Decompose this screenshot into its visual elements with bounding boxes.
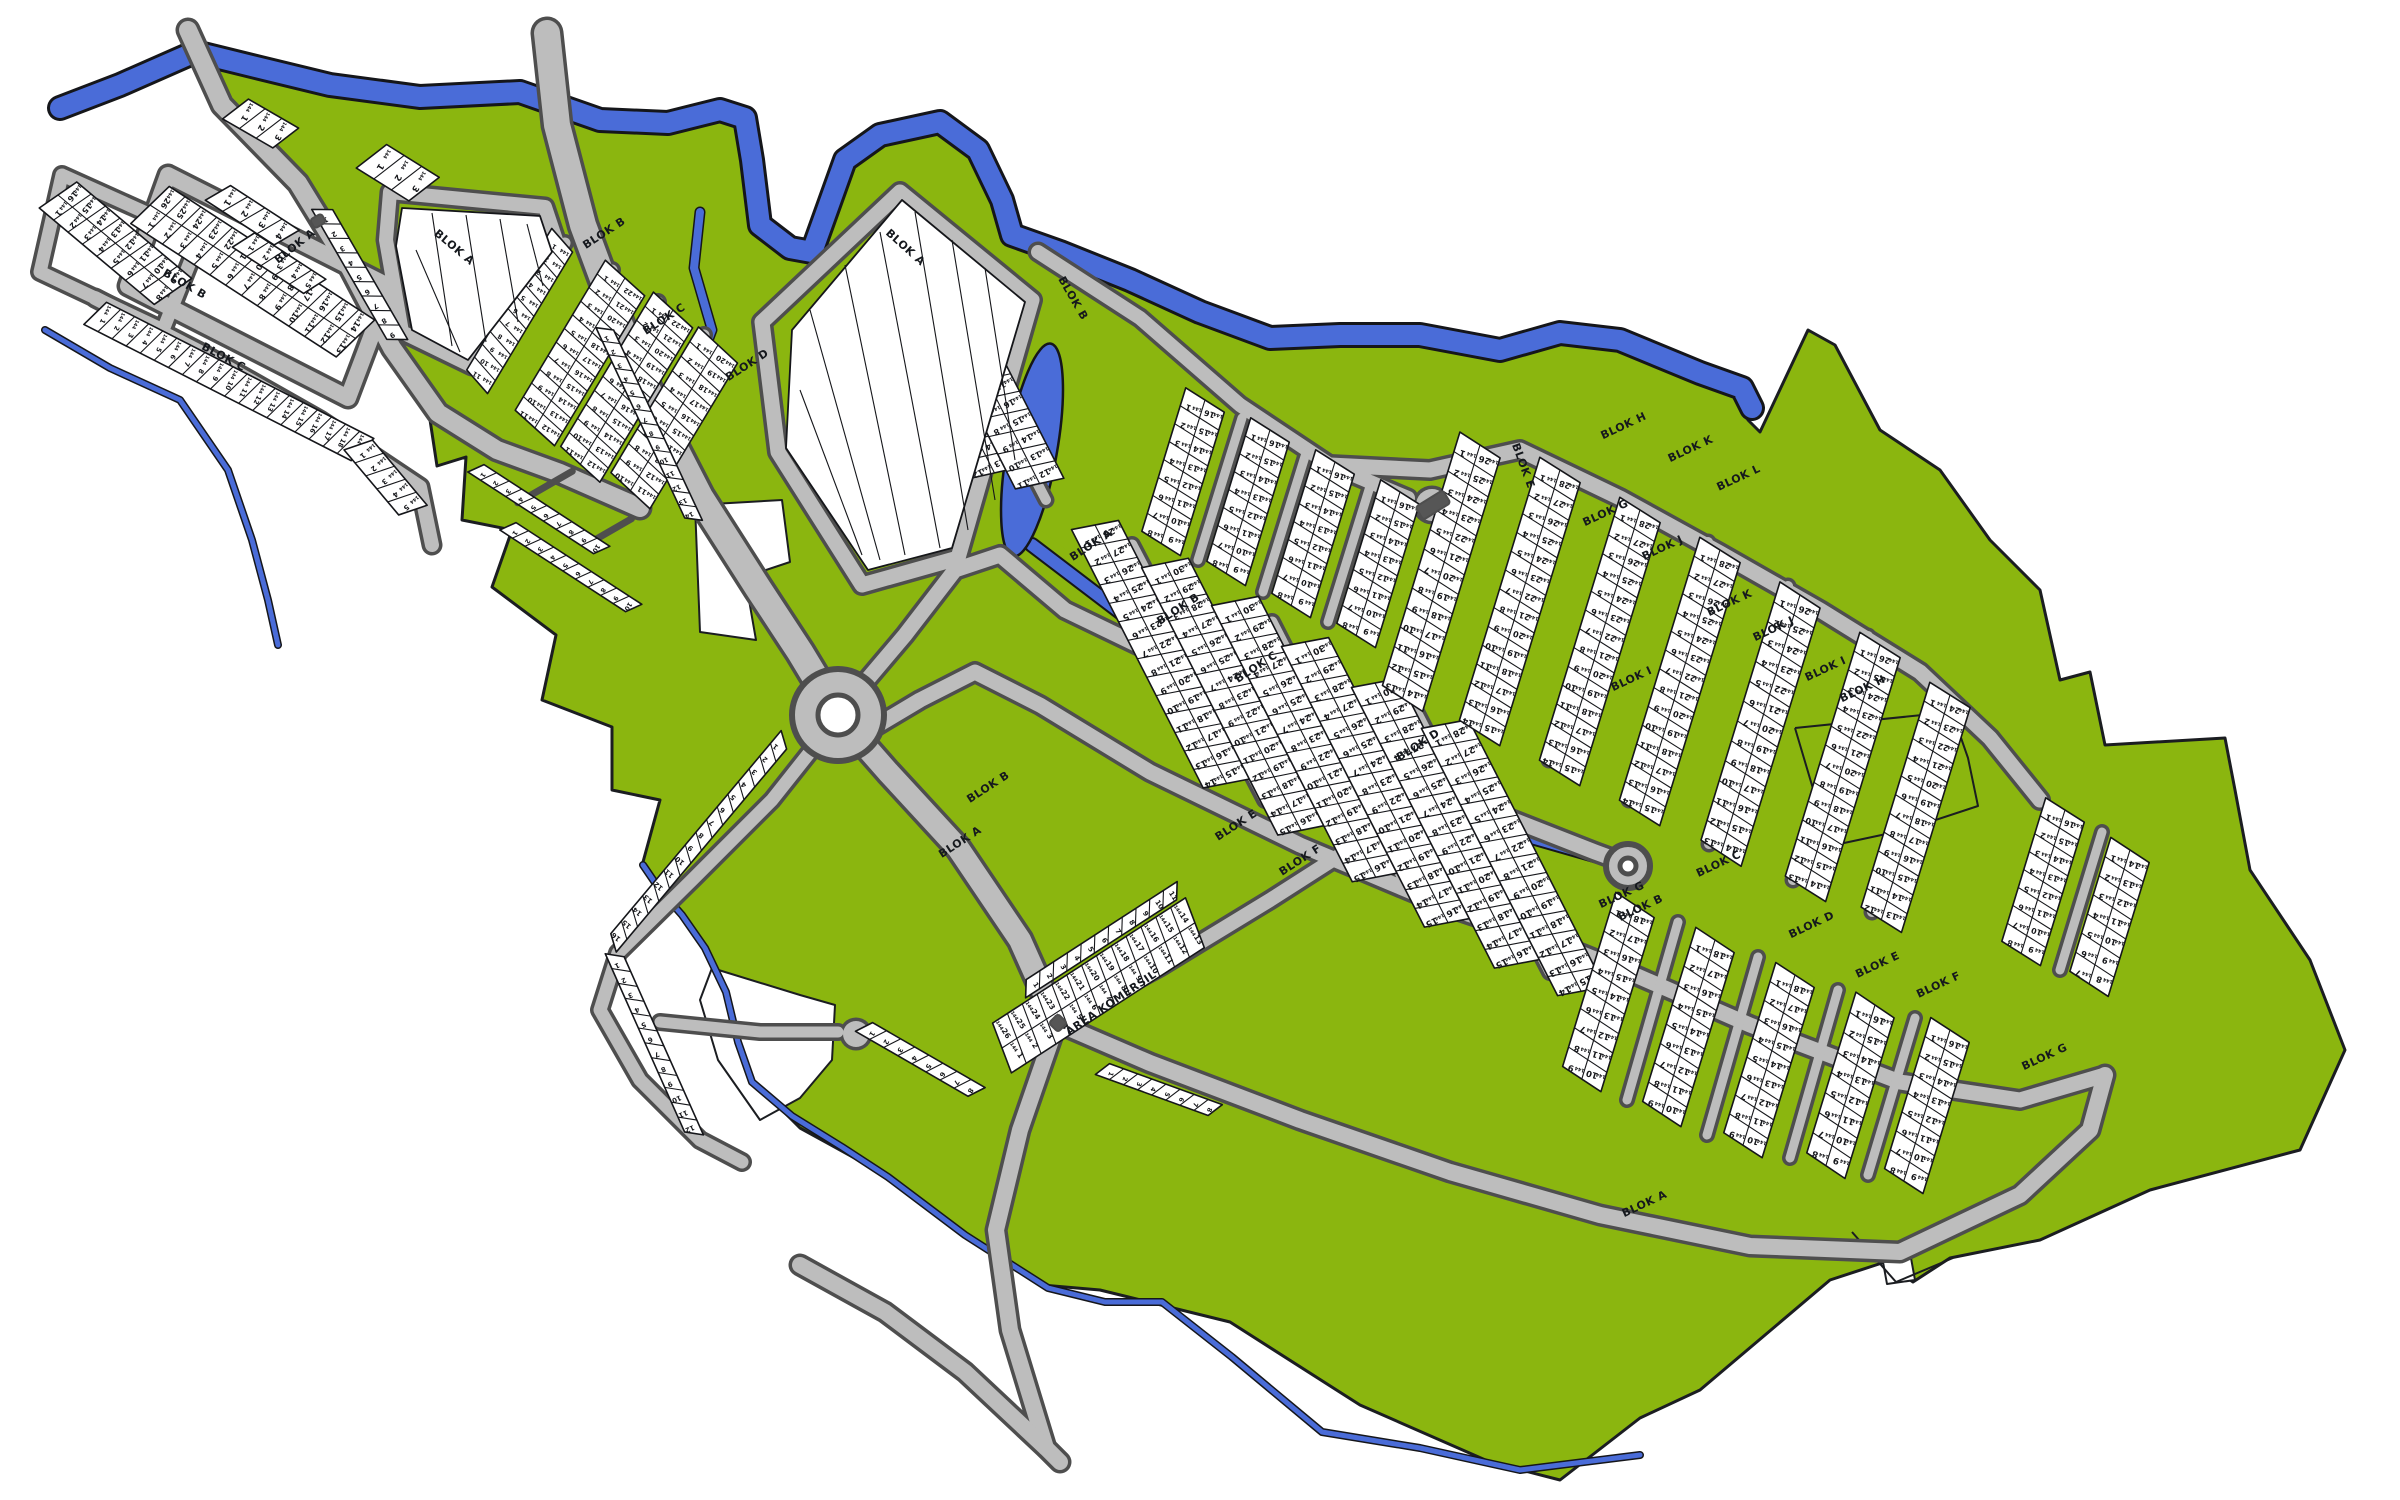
roundabout-island [1620, 858, 1636, 874]
subdivision-plat-svg: 1144161442144151443144141444144131445144… [0, 0, 2400, 1500]
site-plan-map: 1144161442144151443144141444144131445144… [0, 0, 2400, 1500]
roundabout-island [818, 695, 858, 735]
